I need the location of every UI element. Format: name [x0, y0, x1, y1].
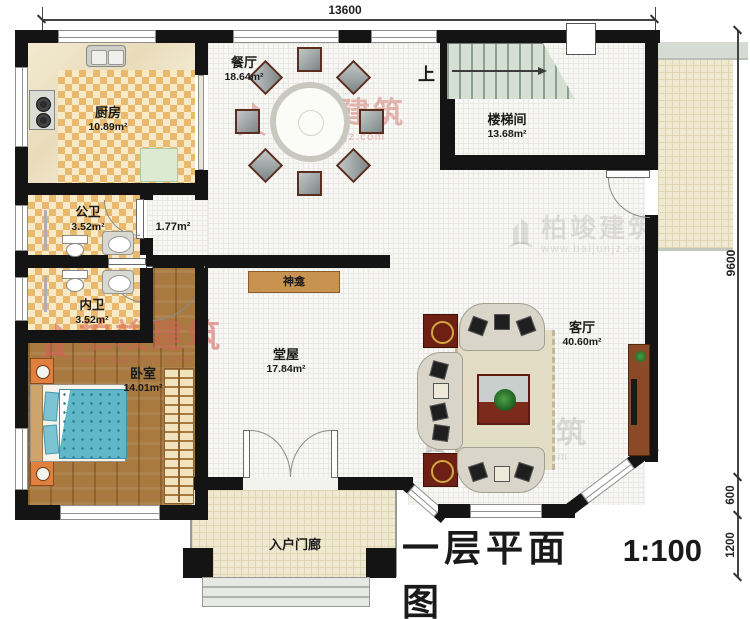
nightstand	[30, 460, 54, 486]
window	[470, 504, 542, 518]
dining-chair	[359, 109, 384, 134]
tv-cabinet	[628, 344, 650, 456]
room-name: 公卫	[58, 205, 118, 221]
room-area: 18.64m²	[208, 71, 280, 84]
stairs-up-arrow-icon	[538, 67, 547, 75]
bath-sink	[102, 231, 134, 255]
room-area: 14.01m²	[105, 382, 181, 395]
stairs-direction-line	[452, 70, 540, 72]
sofa-pillow	[514, 462, 534, 482]
room-name: 卧室	[105, 366, 181, 382]
room-name: 内卫	[62, 298, 122, 314]
wall	[195, 268, 208, 508]
entry-threshold	[243, 477, 338, 490]
window	[15, 428, 28, 490]
table-center	[298, 110, 324, 136]
dimension-label-right: 9600	[724, 239, 738, 287]
sofa-pillow	[433, 383, 449, 399]
kitchen-mat	[140, 148, 178, 182]
dimension-ext	[42, 7, 43, 30]
plant	[494, 389, 516, 411]
sink-basin	[91, 50, 107, 65]
room-label-bedroom: 卧室 14.01m²	[105, 366, 181, 395]
table-ornament	[431, 321, 454, 344]
sliding-door	[198, 75, 204, 170]
window	[60, 505, 160, 520]
window	[15, 277, 28, 321]
dining-chair	[235, 109, 260, 134]
sofa-pillow	[430, 403, 449, 422]
room-name: 厨房	[70, 105, 146, 121]
door-leaf	[108, 258, 146, 265]
wall	[15, 183, 208, 195]
plan-scale: 1:100	[623, 533, 702, 569]
room-label-stairwell: 楼梯间 13.68m²	[468, 112, 546, 141]
sofa	[417, 352, 463, 450]
wall	[15, 255, 108, 268]
dining-chair	[297, 47, 322, 72]
room-name: 楼梯间	[468, 112, 546, 128]
stairs-up-label: 上	[418, 60, 435, 85]
porch-steps	[202, 577, 370, 607]
room-area: 10.89m²	[70, 121, 146, 134]
bath-sink	[102, 270, 134, 294]
bed-pillow	[43, 391, 59, 421]
title-block: 一层平面图 1:100 本层建筑面积：149.48m² 本栋建筑面积：413.2…	[402, 518, 702, 619]
bed	[30, 384, 126, 462]
sink-basin	[108, 236, 131, 253]
burner	[36, 113, 51, 128]
nightstand	[30, 358, 54, 384]
room-label-porch: 入户门廊	[250, 537, 340, 553]
window	[15, 205, 28, 251]
floor-plan-canvas: 柏竣建筑www.baijunjz.com 柏竣建筑www.baijunjz.co…	[0, 0, 750, 619]
side-table	[423, 453, 458, 487]
shrine-label: 神龛	[283, 276, 305, 288]
wall	[440, 155, 658, 170]
tv	[631, 379, 637, 425]
plan-title: 一层平面图	[402, 518, 609, 619]
shrine-cabinet: 神龛	[248, 271, 340, 293]
toilet	[66, 243, 84, 257]
room-label-hall: 堂屋 17.84m²	[248, 347, 324, 376]
wall	[645, 30, 658, 170]
room-area: 3.52m²	[58, 221, 118, 234]
door-leaf	[606, 170, 650, 178]
porch-pillar	[183, 548, 213, 578]
stove	[29, 90, 55, 130]
room-label-corridor: 1.77m²	[148, 221, 198, 235]
wall	[190, 477, 243, 490]
sofa-pillow	[494, 314, 510, 330]
sofa	[459, 303, 545, 351]
room-area: 13.68m²	[468, 128, 546, 141]
room-label-dining: 餐厅 18.64m²	[208, 55, 280, 84]
table-ornament	[431, 460, 454, 483]
flue-box	[566, 23, 596, 55]
sink-basin	[108, 275, 131, 292]
towel-rail	[44, 276, 47, 312]
bed-duvet	[59, 389, 127, 459]
coffee-table	[477, 374, 530, 425]
terrace-floor	[658, 58, 733, 251]
dimension-ext	[655, 7, 656, 30]
window	[15, 67, 28, 147]
room-area: 40.60m²	[543, 336, 621, 349]
wall	[140, 238, 153, 255]
room-name: 堂屋	[248, 347, 324, 363]
room-label-kitchen: 厨房 10.89m²	[70, 105, 146, 134]
sofa-pillow	[432, 424, 450, 442]
room-name: 入户门廊	[250, 537, 340, 553]
dimension-label-bay: 600	[725, 473, 737, 517]
toilet	[66, 278, 84, 292]
dimension-line-right	[737, 30, 739, 577]
side-table	[423, 314, 458, 348]
window	[371, 30, 437, 43]
wall	[140, 268, 153, 330]
lamp	[36, 467, 50, 481]
wall	[195, 30, 208, 75]
kitchen-sink	[86, 45, 126, 67]
window	[58, 30, 156, 43]
burner	[36, 97, 51, 112]
room-label-private-bath: 内卫 3.52m²	[62, 298, 122, 327]
dining-chair	[297, 171, 322, 196]
sofa-pillow	[516, 316, 537, 337]
towel-rail	[44, 210, 47, 250]
room-area: 3.52m²	[62, 314, 122, 327]
bed-pillow	[43, 424, 59, 454]
terrace-top-band	[658, 42, 748, 60]
sofa-pillow	[468, 316, 489, 337]
porch-pillar	[366, 548, 396, 578]
dimension-label-porch: 1200	[725, 523, 737, 567]
sofa-pillow	[429, 360, 449, 380]
sofa-pillow	[494, 466, 510, 482]
plant	[635, 351, 646, 362]
window	[233, 30, 339, 43]
sofa-pillow	[468, 462, 488, 482]
room-name: 客厅	[543, 320, 621, 336]
dimension-line-top	[42, 19, 655, 21]
room-area: 17.84m²	[248, 363, 324, 376]
door-leaf	[243, 430, 250, 478]
dining-table	[270, 82, 350, 162]
door-leaf	[331, 430, 338, 478]
room-label-living: 客厅 40.60m²	[543, 320, 621, 349]
room-label-public-bath: 公卫 3.52m²	[58, 205, 118, 234]
dimension-label-top: 13600	[310, 3, 380, 17]
bed-headboard	[31, 385, 43, 461]
wall	[15, 330, 153, 343]
room-area: 1.77m²	[148, 221, 198, 235]
room-name: 餐厅	[208, 55, 280, 71]
sink-basin	[108, 50, 124, 65]
sofa	[457, 447, 545, 493]
lamp	[36, 365, 50, 379]
